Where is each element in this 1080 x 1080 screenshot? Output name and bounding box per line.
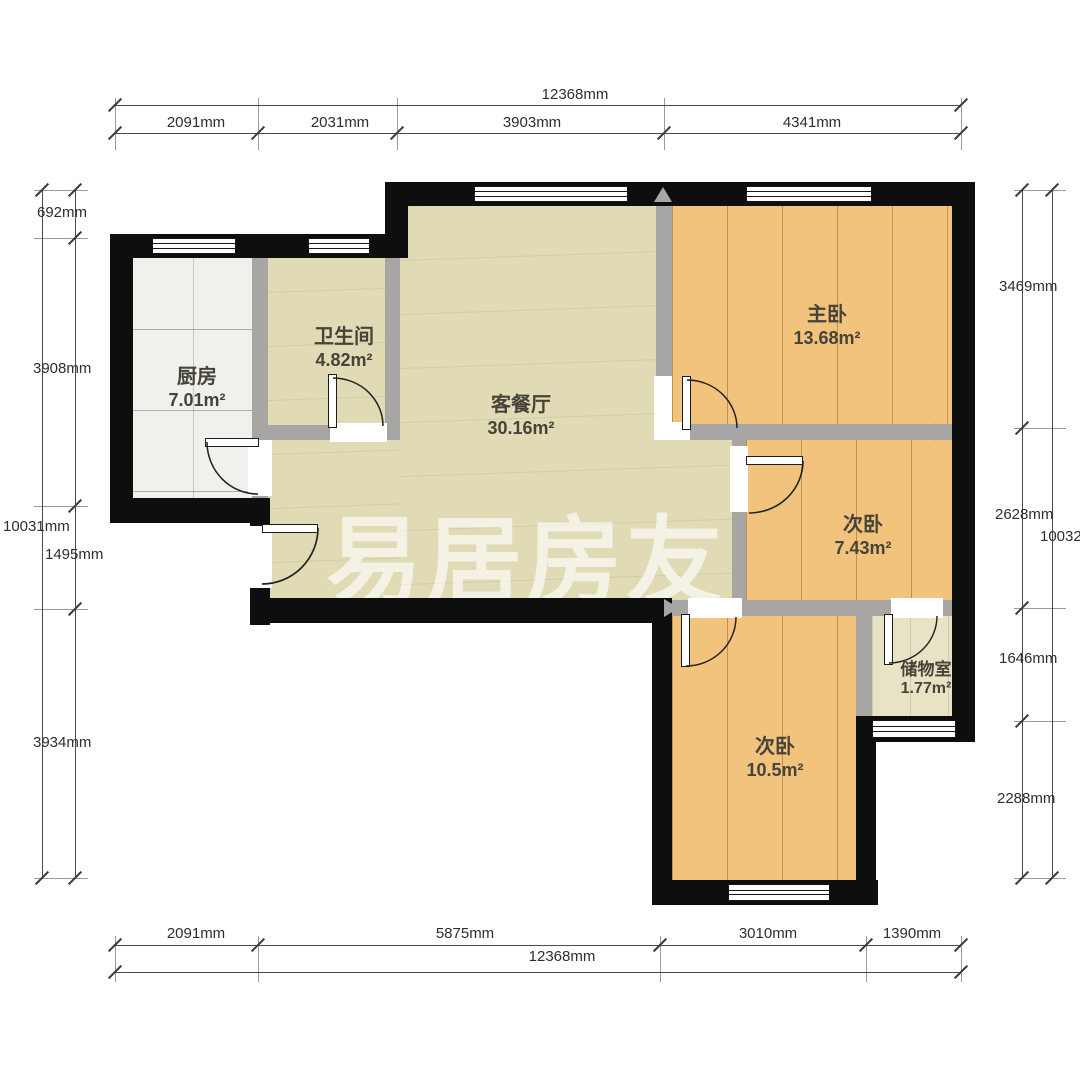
door-swing-arc (889, 616, 937, 663)
door-opening (891, 598, 943, 618)
dim-top-seg1: 2031mm (311, 114, 369, 131)
room-name: 储物室 (901, 660, 952, 680)
door-swing-arc (333, 378, 383, 426)
door-swing-arc (749, 461, 803, 513)
dim-right-seg0: 3469mm (999, 278, 1057, 295)
door-swing-arc (262, 528, 318, 584)
dim-bottom-seg0: 2091mm (167, 925, 225, 942)
wall-arrow-right-icon (664, 599, 679, 617)
room-name: 主卧 (793, 304, 860, 328)
dim-left-seg0: 692mm (37, 204, 87, 221)
dim-bottom-seg2: 3010mm (739, 925, 797, 942)
window (746, 186, 872, 202)
interior-wall (656, 206, 672, 380)
dim-left-seg1: 3908mm (33, 360, 91, 377)
dimension-line (115, 972, 961, 973)
dim-bottom-seg3: 1390mm (883, 925, 941, 942)
room-name: 次卧 (834, 514, 891, 538)
door-swing-arc (207, 442, 258, 494)
exterior-wall (110, 234, 133, 523)
window (308, 238, 370, 254)
dim-left-seg3: 3934mm (33, 734, 91, 751)
door-opening (654, 376, 672, 426)
door-opening (688, 598, 742, 618)
interior-wall (385, 238, 400, 440)
window (152, 238, 236, 254)
dim-left-seg2: 1495mm (45, 546, 103, 563)
dim-left-total: 10031mm (3, 518, 70, 535)
dim-top-seg3: 4341mm (783, 114, 841, 131)
window (872, 720, 956, 738)
wall-arrow-right-icon (934, 423, 949, 441)
dim-top-total: 12368mm (542, 86, 609, 103)
interior-wall (856, 616, 872, 716)
exterior-wall (250, 598, 672, 623)
room-area: 4.82m² (314, 350, 374, 371)
room-label-storage: 储物室 1.77m² (901, 660, 952, 699)
exterior-wall (652, 598, 672, 905)
door-swing-arc (687, 380, 737, 428)
door-swing-arc (686, 617, 736, 666)
dim-top-seg2: 3903mm (503, 114, 561, 131)
dimension-line (115, 945, 961, 946)
room-area: 7.01m² (168, 390, 225, 411)
room-label-bedroom3: 次卧 10.5m² (746, 736, 803, 781)
window (474, 186, 628, 202)
dim-right-seg2: 1646mm (999, 650, 1057, 667)
room-area: 1.77m² (901, 680, 952, 699)
exterior-wall (110, 498, 268, 523)
dim-top-seg0: 2091mm (167, 114, 225, 131)
room-area: 30.16m² (487, 418, 554, 439)
exterior-wall (856, 716, 876, 905)
room-label-living: 客餐厅 30.16m² (487, 394, 554, 439)
room-name: 厨房 (168, 366, 225, 390)
room-name: 客餐厅 (487, 394, 554, 418)
room-label-master: 主卧 13.68m² (793, 304, 860, 349)
dim-right-seg1: 2628mm (995, 506, 1053, 523)
room-label-bedroom2: 次卧 7.43m² (834, 514, 891, 559)
dimension-line (115, 133, 961, 134)
room-label-kitchen: 厨房 7.01m² (168, 366, 225, 411)
room-label-bathroom: 卫生间 4.82m² (314, 326, 374, 371)
dim-right-total: 10032mm (1040, 528, 1080, 545)
wall-arrow-up-icon (654, 187, 672, 202)
dimension-line (115, 105, 961, 106)
floor-plan: 易居房友 (0, 0, 1080, 1080)
dim-bottom-total: 12368mm (529, 948, 596, 965)
room-area: 10.5m² (746, 760, 803, 781)
dim-right-seg3: 2288mm (997, 790, 1055, 807)
room-name: 卫生间 (314, 326, 374, 350)
room-area: 7.43m² (834, 538, 891, 559)
window (728, 884, 830, 901)
exterior-wall (952, 182, 975, 742)
room-area: 13.68m² (793, 328, 860, 349)
room-name: 次卧 (746, 736, 803, 760)
dim-bottom-seg1: 5875mm (436, 925, 494, 942)
dimension-line (75, 190, 76, 878)
